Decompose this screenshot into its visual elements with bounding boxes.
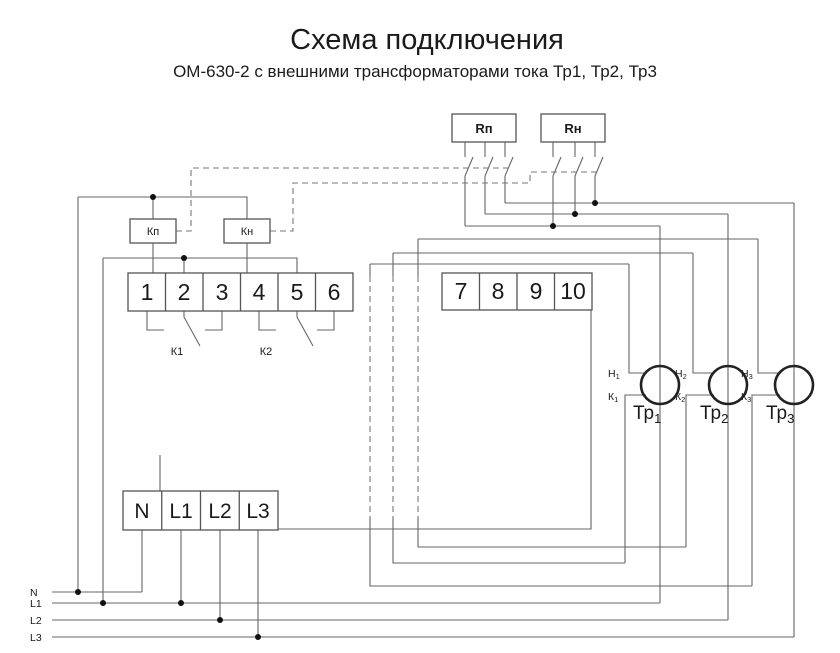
- junction-dot: [217, 617, 223, 623]
- bus-lines: [52, 592, 794, 637]
- terminal-n: N: [134, 500, 149, 523]
- connection-diagram: Схема подключения ОМ-630-2 с внешними тр…: [0, 0, 840, 653]
- terminal-4: 4: [253, 279, 266, 305]
- ct-tr1-name: Тр1: [633, 403, 661, 426]
- junction-dot: [572, 211, 578, 217]
- contact-group-k1-label: К1: [171, 346, 184, 358]
- junction-dot: [255, 634, 261, 640]
- terminal-5: 5: [291, 279, 304, 305]
- terminal-block-current: 7 8 9 10: [442, 273, 592, 310]
- ct-tr3-start-label: Н3: [741, 368, 753, 381]
- terminal-block-relay: 1 2 3 4 5 6: [128, 273, 353, 311]
- schematic-canvas: Схема подключения ОМ-630-2 с внешними тр…: [0, 0, 840, 653]
- contact-group-k2-label: К2: [260, 346, 273, 358]
- ct-tr1-end-label: К1: [608, 391, 618, 404]
- terminal-l3: L3: [246, 500, 269, 523]
- terminal-1: 1: [141, 279, 154, 305]
- ct-tr2-start-label: Н2: [675, 368, 687, 381]
- page-title: Схема подключения: [290, 24, 564, 56]
- junction-dot: [550, 223, 556, 229]
- bus-label-l1: L1: [30, 598, 42, 610]
- junction-dot: [100, 600, 106, 606]
- wiring-load-contacts: [465, 142, 603, 226]
- wiring-k1-k2-contacts: [147, 311, 334, 346]
- wiring-power-terminals: [142, 455, 258, 637]
- terminal-block-power: N L1 L2 L3: [123, 491, 278, 530]
- junction-dot: [181, 255, 187, 261]
- terminal-10: 10: [560, 278, 586, 304]
- wiring-ct-secondary-hidden: [370, 276, 418, 518]
- bus-label-l2: L2: [30, 615, 42, 627]
- junction-dot: [592, 200, 598, 206]
- terminal-7: 7: [455, 278, 468, 304]
- ct-tr2-name: Тр2: [700, 403, 728, 426]
- terminal-2: 2: [178, 279, 191, 305]
- terminal-l2: L2: [208, 500, 231, 523]
- junction-dot: [75, 589, 81, 595]
- coil-kn-label: Кн: [241, 226, 253, 238]
- terminal-9: 9: [530, 278, 543, 304]
- load-rn-label: Rн: [564, 121, 581, 136]
- current-transformer-tr1: Н1 К1 Тр1: [608, 366, 679, 426]
- terminal-l1: L1: [169, 500, 192, 523]
- wiring-control-circuit: [78, 197, 297, 603]
- ct-tr3-name: Тр3: [766, 403, 794, 426]
- junction-dot: [178, 600, 184, 606]
- terminal-3: 3: [216, 279, 229, 305]
- ct-tr3-end-label: К3: [741, 391, 751, 404]
- bus-label-l3: L3: [30, 632, 42, 644]
- ct-tr2-end-label: К2: [675, 391, 685, 404]
- terminal-8: 8: [492, 278, 505, 304]
- junction-dot: [150, 194, 156, 200]
- page-subtitle: ОМ-630-2 с внешними трансформаторами ток…: [173, 62, 657, 81]
- load-rp-label: Rп: [475, 121, 492, 136]
- terminal-6: 6: [328, 279, 341, 305]
- ct-tr1-start-label: Н1: [608, 368, 620, 381]
- coil-kp-label: Кп: [147, 226, 159, 238]
- wiring-terminal10-return: [278, 310, 591, 529]
